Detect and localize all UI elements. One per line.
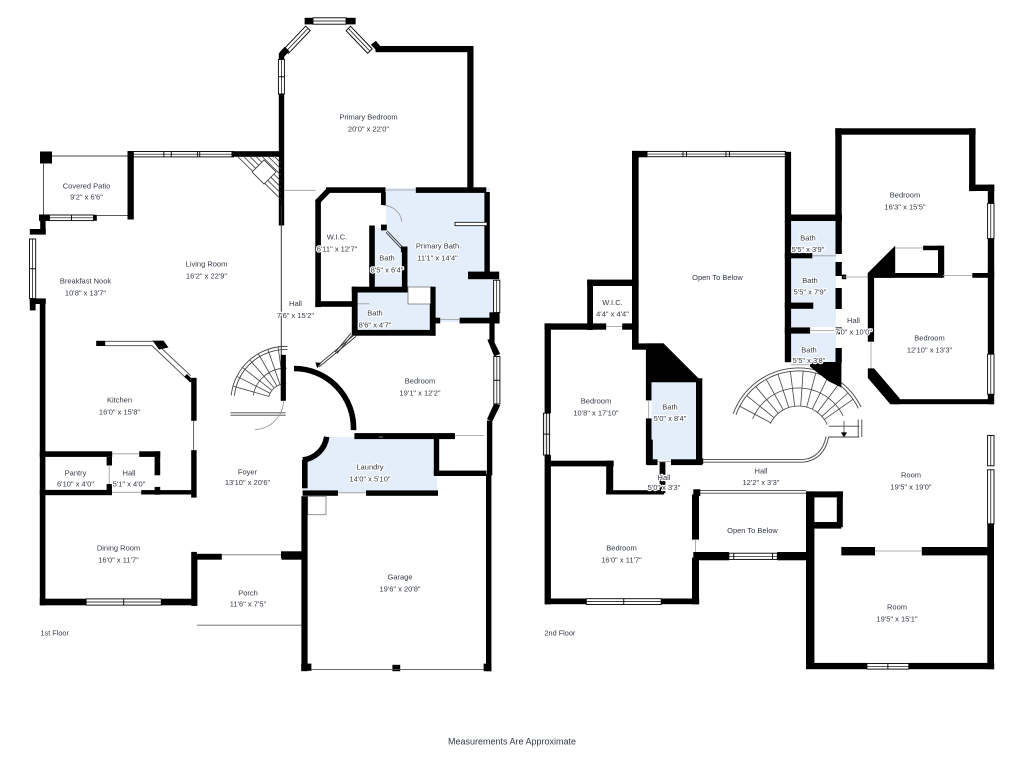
svg-text:Bath: Bath: [800, 234, 815, 243]
svg-text:19'1" x 12'2": 19'1" x 12'2": [399, 389, 440, 398]
svg-text:Hall: Hall: [123, 469, 136, 478]
svg-text:Hall: Hall: [658, 473, 671, 482]
svg-text:8'5" x 6'4": 8'5" x 6'4": [371, 266, 404, 275]
svg-text:Bath: Bath: [379, 254, 394, 263]
svg-text:19'6" x 20'8": 19'6" x 20'8": [379, 585, 420, 594]
svg-text:5'5" x 3'9": 5'5" x 3'9": [792, 245, 825, 254]
svg-text:Foyer: Foyer: [238, 468, 258, 477]
svg-text:19'5" x 15'1": 19'5" x 15'1": [876, 615, 917, 624]
svg-text:Hall: Hall: [847, 316, 860, 325]
svg-text:Primary Bedroom: Primary Bedroom: [339, 113, 397, 122]
svg-text:13'10" x 20'6": 13'10" x 20'6": [225, 478, 271, 487]
svg-text:Garage: Garage: [387, 573, 412, 582]
svg-text:Open To Below: Open To Below: [692, 273, 743, 282]
svg-text:12'2" x 3'3": 12'2" x 3'3": [743, 478, 780, 487]
svg-text:1st Floor: 1st Floor: [41, 629, 70, 638]
svg-text:Room: Room: [887, 603, 907, 612]
svg-text:Open To Below: Open To Below: [727, 526, 778, 535]
svg-text:Bedroom: Bedroom: [890, 191, 920, 200]
svg-text:5'5" x 3'8": 5'5" x 3'8": [793, 356, 826, 365]
svg-text:Bedroom: Bedroom: [606, 544, 636, 553]
svg-text:4'4" x 4'4": 4'4" x 4'4": [596, 310, 629, 319]
svg-text:Bath: Bath: [662, 403, 677, 412]
svg-text:12'10" x 13'3": 12'10" x 13'3": [907, 346, 953, 355]
svg-text:Bedroom: Bedroom: [914, 334, 944, 343]
svg-text:Bedroom: Bedroom: [405, 377, 435, 386]
svg-text:Laundry: Laundry: [356, 463, 383, 472]
svg-text:16'3" x 15'5": 16'3" x 15'5": [884, 203, 925, 212]
svg-text:19'5" x 19'0": 19'5" x 19'0": [890, 483, 931, 492]
svg-text:Bath: Bath: [802, 276, 817, 285]
svg-text:6'10" x 4'0": 6'10" x 4'0": [57, 480, 94, 489]
svg-text:7'6" x 15'2": 7'6" x 15'2": [277, 311, 314, 320]
svg-text:5'0" x 3'3": 5'0" x 3'3": [648, 483, 681, 492]
svg-text:10'8" x 13'7": 10'8" x 13'7": [65, 289, 106, 298]
svg-text:Breakfast Nook: Breakfast Nook: [60, 277, 112, 286]
svg-text:Living Room: Living Room: [186, 260, 228, 269]
svg-text:6'11" x 12'7": 6'11" x 12'7": [317, 245, 358, 254]
svg-text:W.I.C.: W.I.C.: [602, 298, 622, 307]
svg-text:16'0" x 15'8": 16'0" x 15'8": [99, 408, 140, 417]
svg-text:9'2" x 6'6": 9'2" x 6'6": [70, 193, 103, 202]
svg-text:Porch: Porch: [238, 589, 258, 598]
svg-text:Dining Room: Dining Room: [97, 544, 140, 553]
svg-text:14'0" x 5'10": 14'0" x 5'10": [349, 475, 390, 484]
svg-text:Bedroom: Bedroom: [581, 397, 611, 406]
svg-text:16'2" x 22'9": 16'2" x 22'9": [186, 272, 227, 281]
svg-text:8'6" x 4'7": 8'6" x 4'7": [359, 321, 392, 330]
svg-text:16'0" x 11'7": 16'0" x 11'7": [601, 556, 642, 565]
svg-text:20'0" x 22'0": 20'0" x 22'0": [348, 125, 389, 134]
svg-text:Kitchen: Kitchen: [107, 396, 132, 405]
svg-text:Bath: Bath: [367, 309, 382, 318]
svg-text:Measurements Are Approximate: Measurements Are Approximate: [448, 737, 576, 747]
svg-text:Primary Bath: Primary Bath: [416, 242, 459, 251]
svg-text:Hall: Hall: [289, 299, 302, 308]
svg-text:Room: Room: [901, 471, 921, 480]
svg-text:7'0" x 10'0": 7'0" x 10'0": [835, 328, 872, 337]
svg-text:5'1" x 4'0": 5'1" x 4'0": [113, 480, 146, 489]
svg-text:16'0" x 11'7": 16'0" x 11'7": [98, 556, 139, 565]
svg-text:2nd Floor: 2nd Floor: [545, 629, 576, 638]
svg-text:10'8" x 17'10": 10'8" x 17'10": [573, 409, 619, 418]
svg-text:Covered Patio: Covered Patio: [63, 182, 111, 191]
svg-text:5'5" x 7'9": 5'5" x 7'9": [794, 288, 827, 297]
svg-text:Bath: Bath: [801, 346, 816, 355]
svg-text:Hall: Hall: [755, 467, 768, 476]
svg-text:11'6" x 7'5": 11'6" x 7'5": [230, 600, 267, 609]
svg-text:W.I.C.: W.I.C.: [327, 233, 347, 242]
svg-text:11'1" x 14'4": 11'1" x 14'4": [417, 254, 458, 263]
svg-text:Pantry: Pantry: [65, 469, 87, 478]
svg-text:5'0" x 8'4": 5'0" x 8'4": [654, 414, 687, 423]
